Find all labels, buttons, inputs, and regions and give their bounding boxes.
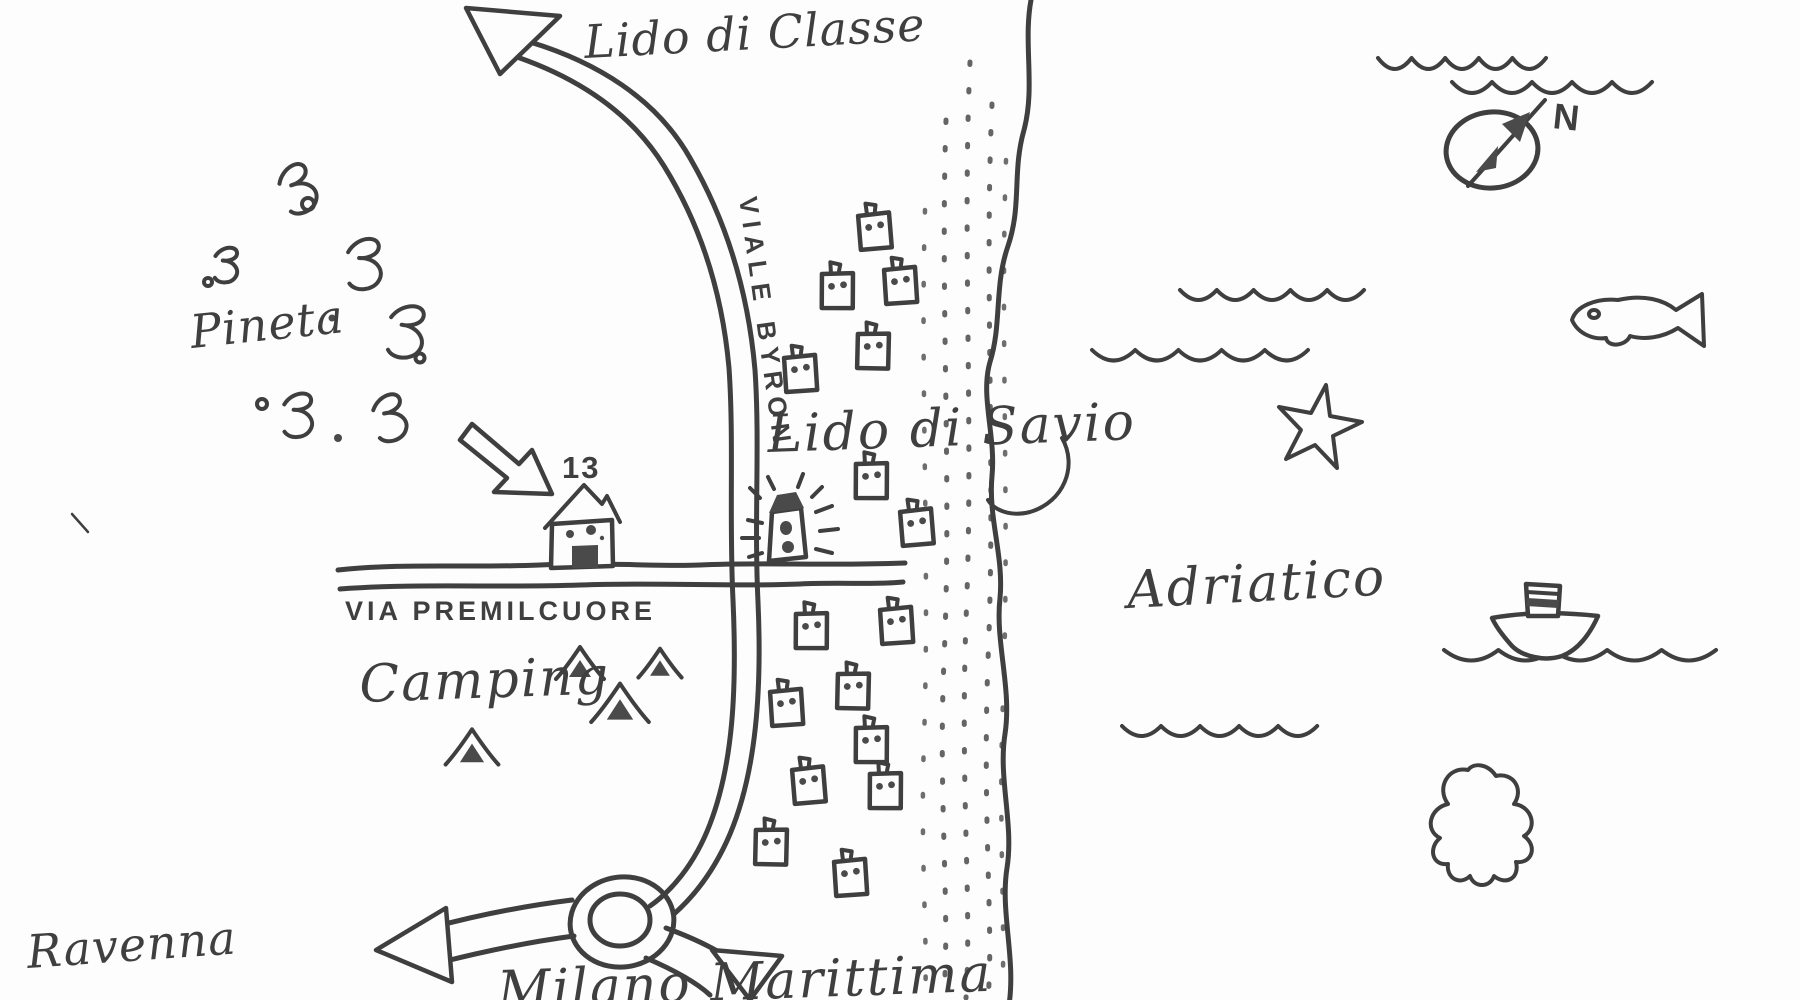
stray-pen-mark [72, 514, 88, 532]
via-premilcuore-road [338, 563, 905, 589]
starfish-icon [1279, 385, 1362, 468]
location-arrow-icon [460, 424, 552, 494]
building-icon [784, 345, 818, 392]
wave-icon [1122, 726, 1317, 736]
map-canvas: VIALE BYRON Lido di Classe VIA PREMILCUO… [0, 0, 1800, 1000]
sea-waves [1092, 58, 1716, 736]
camping-label: Camping [358, 646, 611, 715]
lido-di-savio-label: Lido di Savio [765, 392, 1137, 465]
wave-icon [1378, 58, 1546, 69]
compass-icon [1442, 100, 1545, 193]
building-icon [834, 849, 868, 896]
pineta-label: Pineta [187, 289, 347, 359]
building-icon [791, 756, 825, 804]
building-icon [880, 597, 914, 644]
ravenna-label: Ravenna [24, 910, 238, 979]
building-icon [899, 498, 933, 546]
building-icon [821, 262, 855, 309]
building-icon [856, 322, 890, 370]
house-13-icon [545, 485, 620, 568]
lido-di-classe-arrow-icon [466, 8, 560, 74]
fish-icon [1572, 294, 1704, 346]
building-icon [869, 762, 903, 809]
boat-icon [1492, 584, 1598, 658]
building-icon [855, 716, 889, 763]
wave-icon [1092, 350, 1308, 361]
building-icon [884, 257, 918, 304]
sketch-map: VIALE BYRON Lido di Classe VIA PREMILCUO… [0, 0, 1800, 1000]
building-icon [836, 662, 870, 710]
via-premilcuore-label: VIA PREMILCUORE [345, 596, 656, 626]
milano-marittima-label: Milano Marittima [495, 944, 993, 1000]
octopus-icon [1431, 765, 1532, 885]
building-icon [770, 679, 804, 726]
lido-di-classe-label: Lido di Classe [582, 0, 927, 69]
house-number-label: 13 [562, 450, 600, 485]
coastline [987, 0, 1032, 1000]
building-icon [857, 202, 891, 250]
building-icon [754, 818, 788, 866]
compass-north-label: N [1551, 95, 1581, 138]
wave-icon [1180, 290, 1364, 300]
wave-icon [1452, 82, 1652, 93]
adriatico-label: Adriatico [1122, 547, 1388, 621]
building-icon [795, 602, 829, 649]
wave-icon [1444, 650, 1716, 661]
